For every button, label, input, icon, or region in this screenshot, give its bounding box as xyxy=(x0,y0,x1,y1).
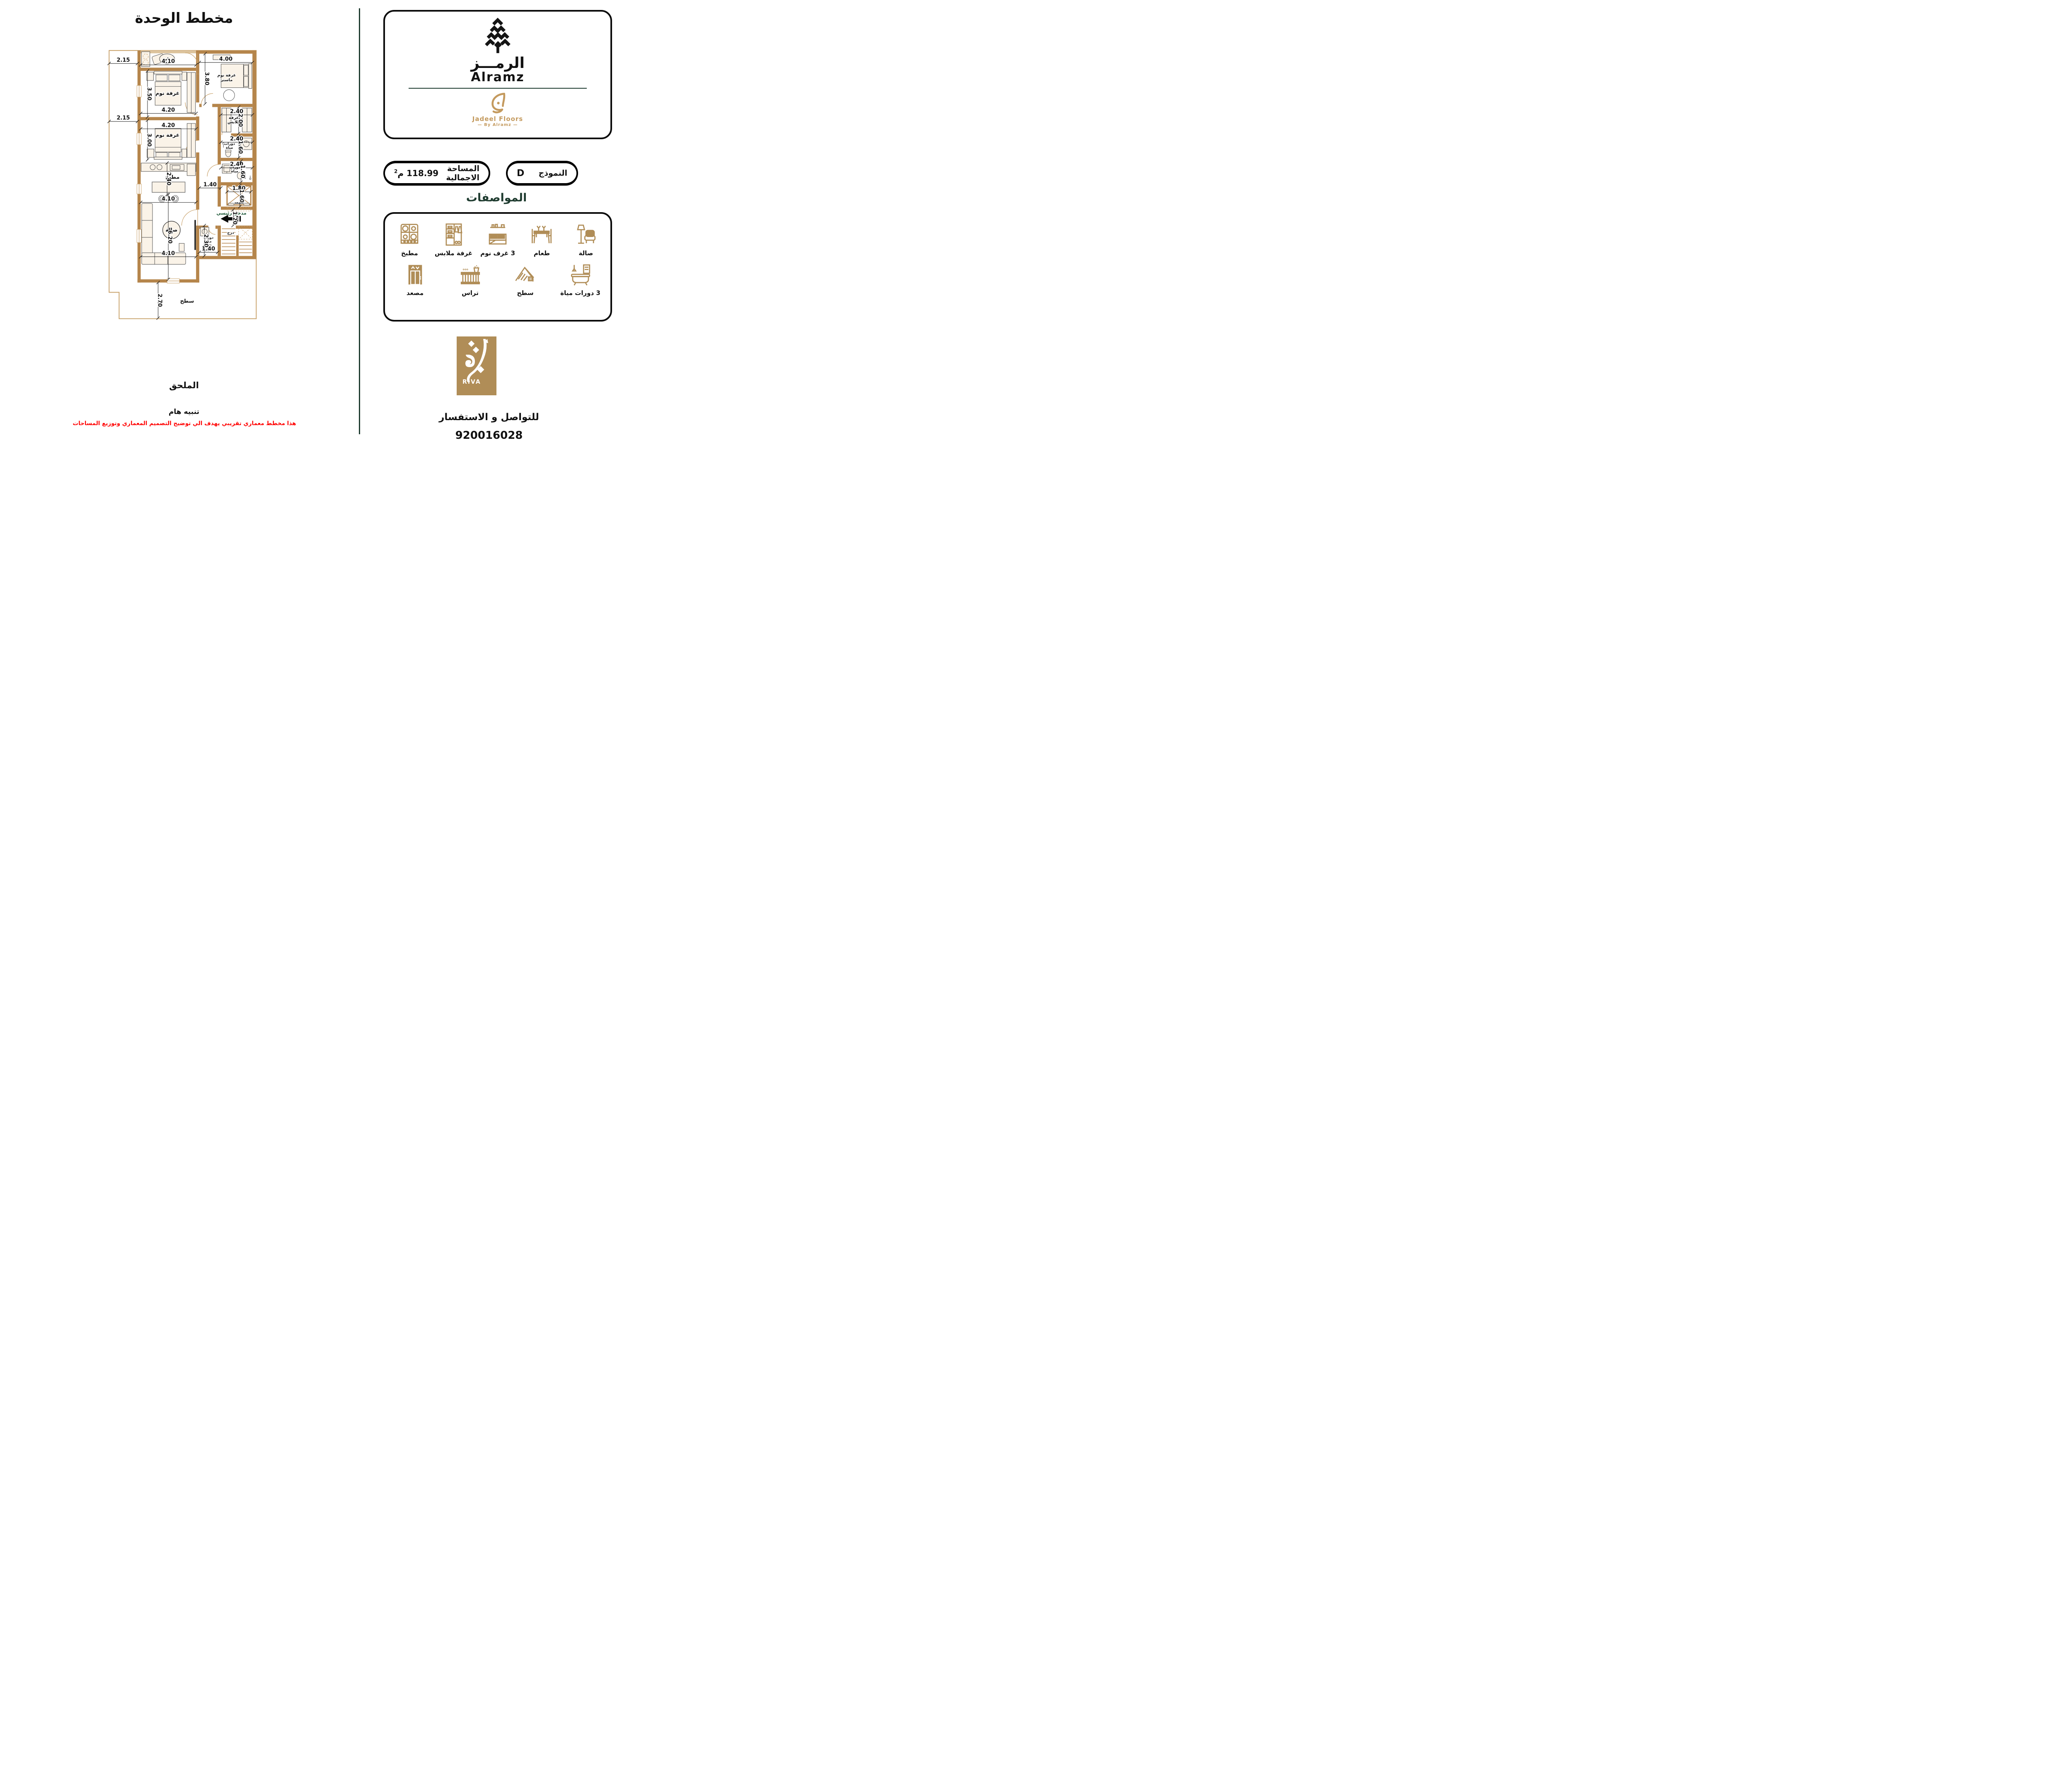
svg-text:4.20: 4.20 xyxy=(162,107,175,113)
svg-text:1.60: 1.60 xyxy=(237,140,243,154)
card-divider xyxy=(409,88,587,89)
svg-text:3.50: 3.50 xyxy=(146,87,152,100)
stove-icon xyxy=(397,223,421,247)
svg-text:2.00: 2.00 xyxy=(237,114,243,127)
floor-plan-svg: تراس غرفة نوم غرفة نوم xyxy=(101,43,271,355)
spec-dressing: غرفة ملابس xyxy=(432,223,475,257)
bathtub-icon xyxy=(569,263,593,287)
svg-text:2.15: 2.15 xyxy=(116,115,130,121)
floor-plan: تراس غرفة نوم غرفة نوم xyxy=(101,43,271,355)
room-label-master-1: غرفة نوم xyxy=(218,73,236,78)
svg-text:3.00: 3.00 xyxy=(146,133,152,147)
jadeel-name: Jadeel Floors xyxy=(472,115,523,123)
svg-text:4.10: 4.10 xyxy=(162,58,175,65)
svg-text:1.60: 1.60 xyxy=(240,165,246,178)
jadeel-mark-icon xyxy=(486,91,509,114)
specs-heading: المواصفات xyxy=(447,191,546,204)
specs-row-2: 3 دورات مياة سطح تراس xyxy=(387,263,608,297)
model-pill: النموذج D xyxy=(506,161,578,186)
room-label-bedroom2: غرفة نوم xyxy=(155,132,179,138)
specs-box: صالة طعام 3 غرف نوم xyxy=(383,212,612,322)
svg-text:2.70: 2.70 xyxy=(156,294,162,307)
room-label-roof: سطح xyxy=(180,298,194,304)
annex-title: الملحق xyxy=(101,380,267,390)
elevator-icon xyxy=(403,263,427,287)
alramz-tree-icon xyxy=(482,17,513,55)
brand-name-arabic: الرمـــز xyxy=(471,56,525,71)
spec-baths: 3 دورات مياة xyxy=(559,263,602,297)
vertical-divider xyxy=(359,8,360,434)
room-label-bath1-1: دورات xyxy=(224,142,235,146)
model-label: النموذج xyxy=(539,169,568,178)
riva-text: RIVA xyxy=(462,379,481,385)
spec-dining: طعام xyxy=(520,223,563,257)
spec-bedrooms: 3 غرف نوم xyxy=(476,223,519,257)
svg-text:4.20: 4.20 xyxy=(162,123,175,129)
spec-roof: سطح xyxy=(504,263,547,297)
roof-icon xyxy=(513,263,537,287)
notice-title: تنبيه هام xyxy=(101,408,267,416)
contact-phone: 920016028 xyxy=(414,429,564,442)
brochure-page: مخطط الوحدة xyxy=(0,0,630,447)
spec-elevator: مصعد xyxy=(394,263,437,297)
room-label-bath1-2: مياة xyxy=(226,146,233,150)
room-label-master-2: ماستر xyxy=(220,78,232,82)
contact-label: للتواصل و الاستفسار xyxy=(414,412,564,423)
specs-row-1: صالة طعام 3 غرف نوم xyxy=(387,223,608,257)
svg-text:2.30: 2.30 xyxy=(203,234,209,247)
model-value: D xyxy=(517,168,524,179)
sofa-lamp-icon xyxy=(574,223,598,247)
svg-text:3.80: 3.80 xyxy=(203,72,210,85)
svg-text:2.40: 2.40 xyxy=(165,172,172,185)
area-pill: المساحة الاجمالية 118.99 م2 xyxy=(383,161,490,186)
room-label-stairs: درج xyxy=(227,231,234,235)
jadeel-by: — By Alramz — xyxy=(478,123,518,127)
balcony-icon xyxy=(458,263,482,287)
page-title: مخطط الوحدة xyxy=(101,10,267,27)
svg-text:4.00: 4.00 xyxy=(219,56,232,62)
dining-icon xyxy=(530,223,554,247)
area-value: 118.99 م2 xyxy=(394,168,438,178)
area-label: المساحة الاجمالية xyxy=(438,164,479,182)
svg-text:2.15: 2.15 xyxy=(116,57,130,63)
spec-kitchen: مطبخ xyxy=(388,223,431,257)
bed-icon xyxy=(486,223,510,247)
notice-text: هذا مخطط معماري تقريبي يهدف الي توضيح ال… xyxy=(50,420,319,427)
svg-text:1.20: 1.20 xyxy=(231,211,237,225)
entrance-arrow xyxy=(220,215,241,223)
brand-name-english: Alramz xyxy=(471,71,524,84)
svg-text:6.20: 6.20 xyxy=(167,230,173,244)
spec-terrace: تراس xyxy=(449,263,492,297)
brand-card: الرمـــز Alramz Jadeel Floors — By Alram… xyxy=(383,10,612,139)
room-label-bedroom1: غرفة نوم xyxy=(155,90,179,97)
svg-text:1.60: 1.60 xyxy=(238,189,244,203)
riva-logo: RIVA xyxy=(457,336,496,395)
svg-text:4.10: 4.10 xyxy=(162,250,175,256)
svg-text:1.40: 1.40 xyxy=(202,246,215,252)
spec-living: صالة xyxy=(564,223,608,257)
svg-text:1.40: 1.40 xyxy=(203,181,217,188)
room-label-bath2-2: مياة xyxy=(231,169,238,174)
wardrobe-icon xyxy=(442,223,466,247)
